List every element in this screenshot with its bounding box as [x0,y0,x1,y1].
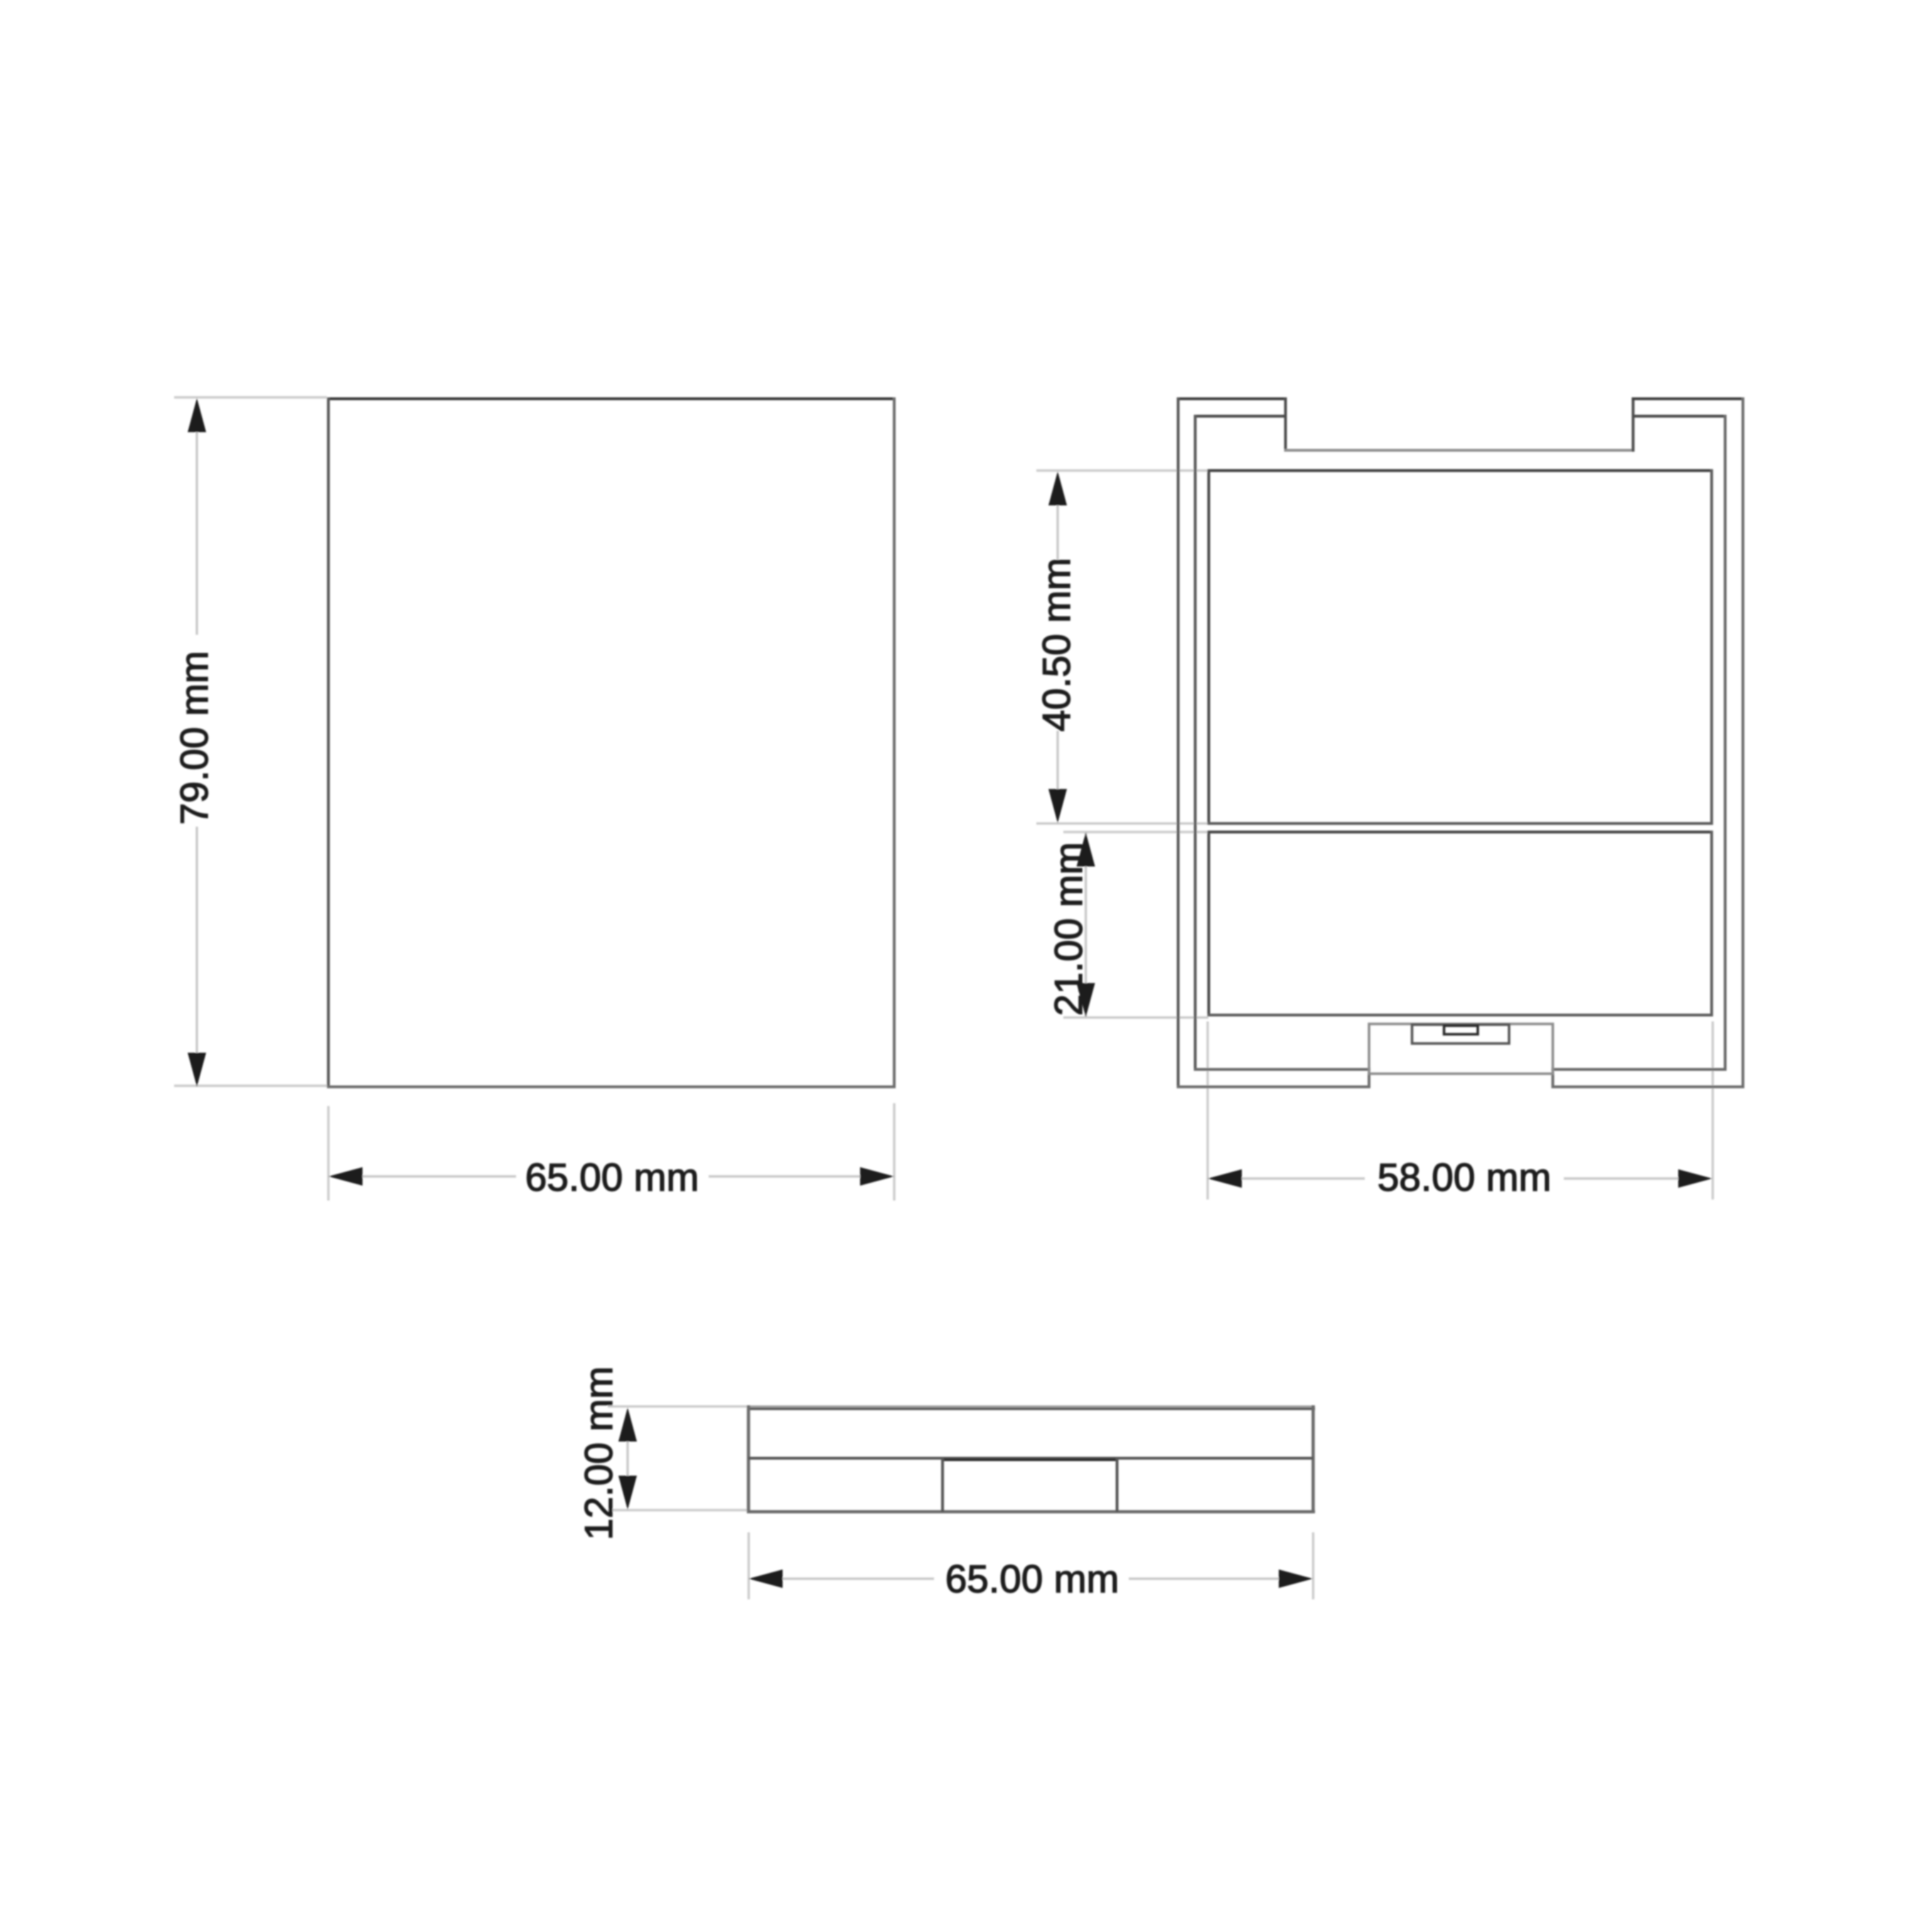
svg-text:65.00 mm: 65.00 mm [945,1557,1120,1601]
svg-text:21.00 mm: 21.00 mm [1046,842,1090,1016]
svg-text:40.50 mm: 40.50 mm [1034,558,1078,732]
svg-text:58.00 mm: 58.00 mm [1378,1155,1552,1199]
svg-text:79.00 mm: 79.00 mm [172,651,216,825]
svg-text:12.00 mm: 12.00 mm [576,1366,621,1540]
svg-text:65.00 mm: 65.00 mm [525,1155,699,1199]
